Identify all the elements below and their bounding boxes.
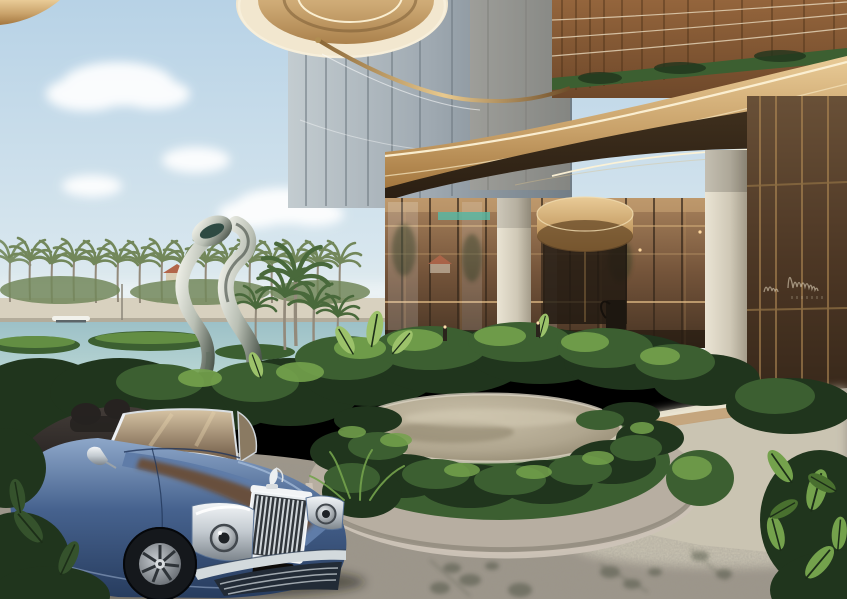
boat [52,316,90,323]
headlight-left [192,503,254,561]
scene-canvas: Architectural rendering: waterfront luxu… [0,0,847,599]
rendered-scene: Architectural rendering: waterfront luxu… [0,0,847,599]
front-wheel [123,527,197,599]
